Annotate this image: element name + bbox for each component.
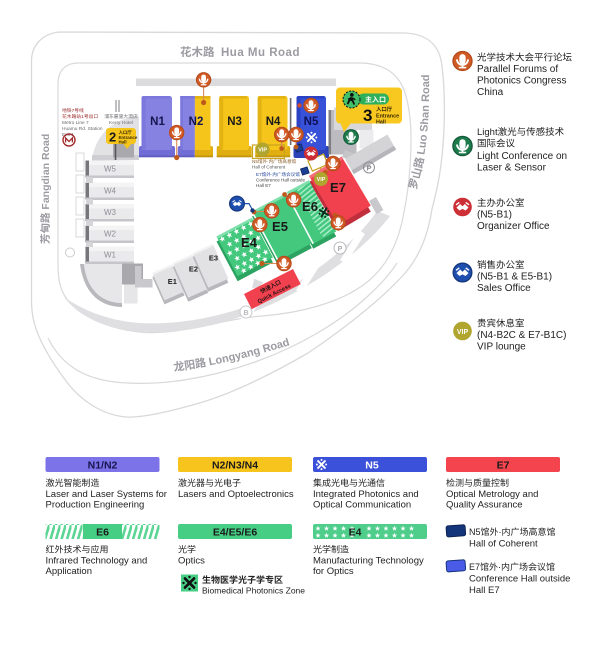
svg-text:主入口: 主入口 — [365, 96, 386, 104]
svg-text:Metro Line 7: Metro Line 7 — [62, 120, 89, 126]
svg-text:Lasers and Optoelectronics: Lasers and Optoelectronics — [178, 489, 294, 500]
svg-text:W3: W3 — [104, 208, 117, 217]
svg-text:E2: E2 — [189, 265, 198, 274]
svg-text:3: 3 — [363, 106, 372, 125]
svg-text:2: 2 — [109, 130, 116, 145]
svg-text:红外技术与应用: 红外技术与应用 — [46, 545, 109, 555]
svg-text:Quality Assurance: Quality Assurance — [446, 500, 523, 511]
svg-text:Application: Application — [46, 566, 92, 577]
svg-text:生物医学光子学专区: 生物医学光子学专区 — [202, 575, 283, 585]
svg-text:Laser and Laser Systems for: Laser and Laser Systems for — [46, 489, 167, 500]
svg-text:Hall: Hall — [119, 140, 127, 145]
svg-text:销售办公室: 销售办公室 — [477, 259, 525, 271]
svg-text:Sales Office: Sales Office — [477, 283, 531, 294]
svg-text:检测与质量控制: 检测与质量控制 — [446, 478, 509, 488]
svg-text:E1: E1 — [168, 277, 177, 286]
svg-text:(N5-B1): (N5-B1) — [477, 210, 512, 221]
svg-text:W5: W5 — [104, 165, 117, 174]
svg-text:Hall E7: Hall E7 — [469, 585, 500, 596]
svg-text:N1: N1 — [150, 116, 165, 128]
svg-text:花木路站1号出口: 花木路站1号出口 — [62, 113, 98, 120]
svg-text:入口厅: 入口厅 — [376, 106, 393, 113]
svg-text:N1/N2: N1/N2 — [88, 460, 118, 472]
svg-text:N5馆外·内广场高意馆: N5馆外·内广场高意馆 — [469, 527, 556, 537]
svg-text:E4/E5/E6: E4/E5/E6 — [213, 527, 258, 539]
svg-text:Optical Metrology and: Optical Metrology and — [446, 489, 538, 500]
svg-text:E7: E7 — [330, 180, 346, 195]
svg-text:Production Engineering: Production Engineering — [46, 500, 145, 511]
svg-text:E6: E6 — [302, 199, 318, 214]
svg-text:for Optics: for Optics — [313, 566, 354, 577]
svg-text:(N4-B2C & E7-B1C): (N4-B2C & E7-B1C) — [477, 330, 566, 341]
svg-text:N2: N2 — [189, 116, 204, 128]
svg-text:Organizer Office: Organizer Office — [477, 221, 550, 232]
svg-text:Conference Hall outside: Conference Hall outside — [469, 574, 570, 585]
svg-text:P: P — [366, 164, 371, 173]
svg-text:E4: E4 — [241, 235, 258, 250]
svg-text:主办办公室: 主办办公室 — [477, 197, 525, 209]
svg-text:光学技术大会平行论坛: 光学技术大会平行论坛 — [477, 52, 573, 64]
svg-text:Manufacturing Technology: Manufacturing Technology — [313, 556, 424, 567]
svg-text:Photonics Congress: Photonics Congress — [477, 76, 567, 87]
svg-text:Parallel Forums of: Parallel Forums of — [477, 64, 558, 75]
svg-text:E4: E4 — [349, 527, 362, 539]
svg-text:Optics: Optics — [178, 556, 205, 567]
svg-text:China: China — [477, 87, 504, 98]
svg-text:P: P — [338, 246, 343, 253]
svg-text:芳甸路 Fangdian Road: 芳甸路 Fangdian Road — [40, 134, 52, 244]
svg-text:Conference Hall outside: Conference Hall outside — [256, 178, 305, 183]
svg-text:N5馆外·内广场高意馆: N5馆外·内广场高意馆 — [252, 159, 297, 164]
svg-text:Kerry Hotel: Kerry Hotel — [109, 120, 133, 126]
svg-text:Hall E7: Hall E7 — [256, 183, 271, 188]
svg-text:集成光电与光通信: 集成光电与光通信 — [313, 478, 385, 488]
svg-text:花木路: 花木路 — [180, 46, 215, 59]
svg-text:W1: W1 — [104, 251, 117, 260]
svg-text:E6: E6 — [96, 527, 109, 539]
svg-text:激光智能制造: 激光智能制造 — [46, 478, 100, 488]
svg-text:E7馆外·内广场会议馆: E7馆外·内广场会议馆 — [469, 562, 555, 572]
svg-text:VIP: VIP — [457, 329, 469, 336]
svg-text:Integrated Photonics and: Integrated Photonics and — [313, 489, 419, 500]
svg-text:地铁7号线: 地铁7号线 — [62, 107, 84, 114]
svg-text:Infrared Technology and: Infrared Technology and — [46, 556, 148, 567]
svg-text:Light Conference on: Light Conference on — [477, 151, 567, 162]
svg-text:N4: N4 — [266, 116, 281, 128]
svg-text:N3: N3 — [227, 116, 242, 128]
svg-text:国际会议: 国际会议 — [477, 139, 516, 150]
svg-text:N5: N5 — [304, 116, 319, 128]
svg-text:光学制造: 光学制造 — [313, 545, 349, 555]
svg-text:W4: W4 — [104, 187, 117, 196]
svg-text:N2/N3/N4: N2/N3/N4 — [212, 460, 258, 472]
svg-text:激光器与光电子: 激光器与光电子 — [178, 478, 241, 488]
svg-text:N5: N5 — [365, 460, 379, 472]
svg-text:W2: W2 — [104, 230, 117, 239]
svg-text:E5: E5 — [272, 219, 288, 234]
svg-text:Hall of Coherent: Hall of Coherent — [469, 539, 538, 550]
svg-text:E7: E7 — [497, 460, 510, 472]
svg-text:Laser & Sensor: Laser & Sensor — [477, 163, 547, 174]
svg-text:(N5-B1 & E5-B1): (N5-B1 & E5-B1) — [477, 272, 552, 283]
svg-text:E7馆外·内广场会议馆: E7馆外·内广场会议馆 — [256, 172, 300, 177]
svg-text:浦东嘉里大酒店: 浦东嘉里大酒店 — [104, 113, 138, 120]
svg-text:Optical Communication: Optical Communication — [313, 500, 411, 511]
svg-text:VIP lounge: VIP lounge — [477, 342, 526, 353]
svg-text:Hall of Coherent: Hall of Coherent — [252, 165, 286, 170]
svg-text:贵宾休息室: 贵宾休息室 — [477, 318, 525, 330]
svg-text:Hall: Hall — [376, 120, 386, 126]
svg-text:E3: E3 — [209, 254, 218, 263]
svg-text:Huamu Rd. Station: Huamu Rd. Station — [62, 126, 103, 132]
svg-text:Light激光与传感技术: Light激光与传感技术 — [477, 127, 565, 138]
svg-text:B: B — [243, 310, 248, 317]
svg-text:Hua Mu Road: Hua Mu Road — [221, 47, 300, 59]
svg-text:光学: 光学 — [178, 545, 196, 555]
svg-text:Biomedical Photonics Zone: Biomedical Photonics Zone — [202, 586, 305, 596]
